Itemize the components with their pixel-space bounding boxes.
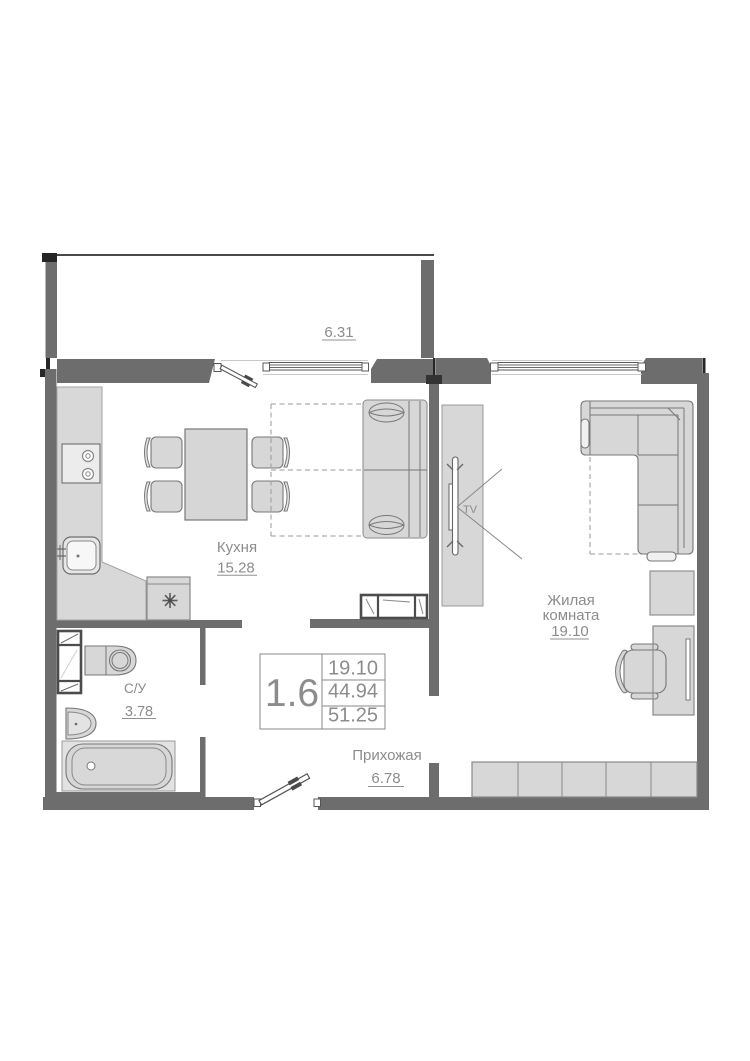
- svg-text:19.10: 19.10: [551, 623, 589, 640]
- svg-text:3.78: 3.78: [125, 704, 153, 720]
- svg-text:6.78: 6.78: [371, 770, 400, 787]
- svg-text:6.31: 6.31: [324, 324, 353, 341]
- svg-text:TV: TV: [463, 504, 478, 516]
- svg-text:44.94: 44.94: [328, 681, 378, 703]
- svg-text:Кухня: Кухня: [217, 539, 257, 556]
- svg-text:51.25: 51.25: [328, 705, 378, 727]
- svg-text:Прихожая: Прихожая: [352, 747, 422, 764]
- svg-text:1.6: 1.6: [265, 672, 319, 715]
- svg-text:19.10: 19.10: [328, 658, 378, 680]
- svg-text:15.28: 15.28: [217, 560, 255, 577]
- svg-text:С/У: С/У: [124, 681, 147, 696]
- svg-text:комната: комната: [543, 607, 600, 624]
